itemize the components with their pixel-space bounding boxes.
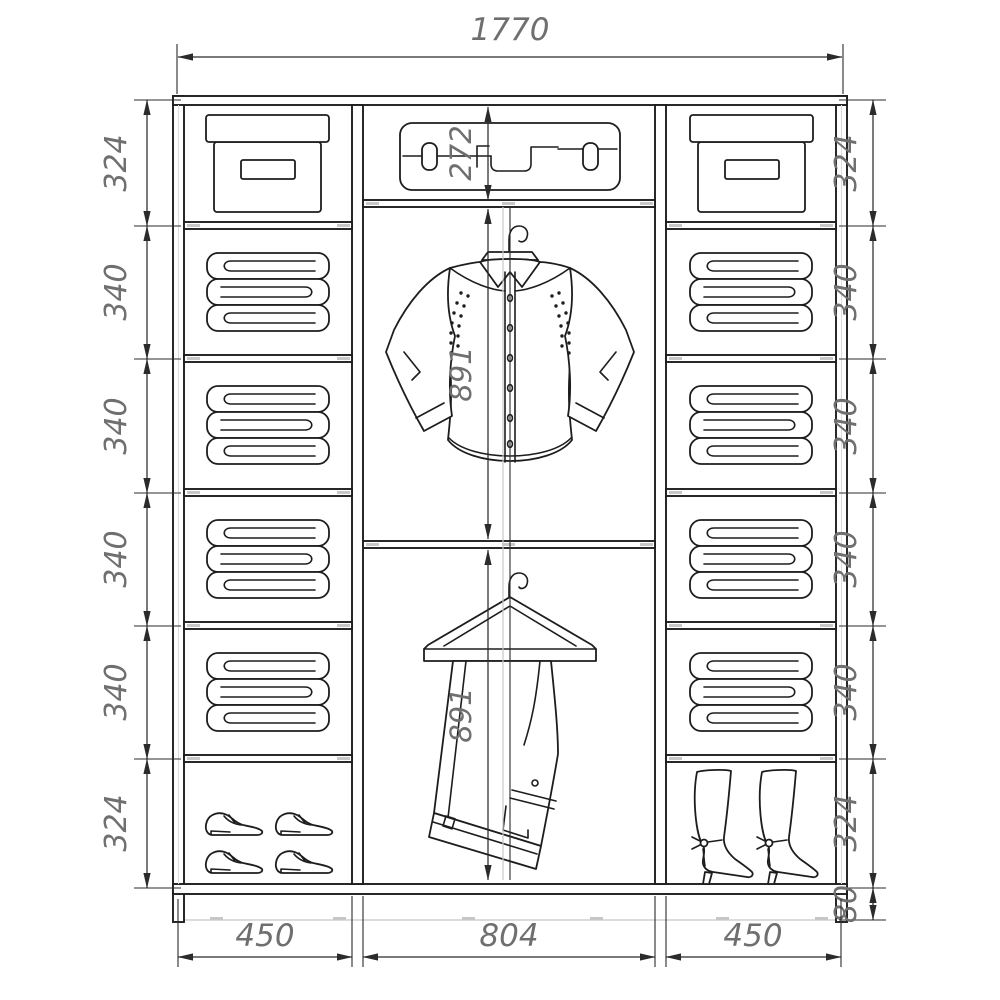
dimension-label: 340: [99, 263, 134, 320]
hanger-hook-icon: [509, 573, 528, 599]
hanger-hook-icon: [509, 226, 528, 252]
dimension-label: 324: [99, 134, 134, 191]
dimension-label: 340: [99, 397, 134, 454]
dimension-label: 324: [829, 134, 864, 191]
shelf: [184, 622, 352, 629]
bottom-panel: [173, 884, 847, 894]
shelf: [184, 222, 352, 229]
dimension-left-chain: 324 340 340 340 340 324: [99, 100, 181, 888]
wardrobe-technical-drawing: 1770 324 340 340 340 340 324: [0, 0, 1000, 1000]
top-panel: [173, 96, 847, 105]
shoes-illustration: [206, 813, 332, 873]
dimension-top-width: 1770: [177, 12, 843, 94]
dimension-label-total-width: 1770: [471, 12, 550, 48]
dimension-label: 340: [829, 397, 864, 454]
shelf: [184, 489, 352, 496]
storage-box-left-illustration: [206, 115, 329, 212]
storage-box-right-illustration: [690, 115, 813, 212]
dimension-label: 324: [829, 794, 864, 851]
dimension-label: 340: [99, 663, 134, 720]
shelf: [666, 355, 836, 362]
suitcase-latch: [583, 143, 598, 170]
dimension-bottom-widths: 450 804 450: [178, 896, 841, 967]
shelf: [666, 755, 836, 762]
dimension-label: 891: [444, 687, 478, 742]
dimension-label: 804: [479, 918, 538, 954]
dimension-label: 340: [829, 530, 864, 587]
dimension-label: 340: [829, 263, 864, 320]
suitcase-illustration: [400, 123, 620, 190]
partition-left: [352, 105, 363, 884]
dimension-label: 324: [99, 794, 134, 851]
boots-illustration: [692, 770, 818, 884]
shelf: [666, 489, 836, 496]
suitcase-latch: [422, 143, 437, 170]
dimension-label: 340: [99, 530, 134, 587]
shelf: [184, 755, 352, 762]
shelf: [666, 222, 836, 229]
dimension-label: 272: [444, 125, 478, 180]
dimension-label: 450: [723, 918, 782, 954]
dimension-label: 340: [829, 663, 864, 720]
shelf: [666, 622, 836, 629]
dimension-label: 891: [444, 346, 478, 401]
partition-right: [655, 105, 666, 884]
dimension-label-plinth: 80: [829, 885, 864, 923]
dimension-label: 450: [235, 918, 294, 954]
shelf: [184, 355, 352, 362]
drawing-canvas: 1770 324 340 340 340 340 324: [0, 0, 1000, 1000]
